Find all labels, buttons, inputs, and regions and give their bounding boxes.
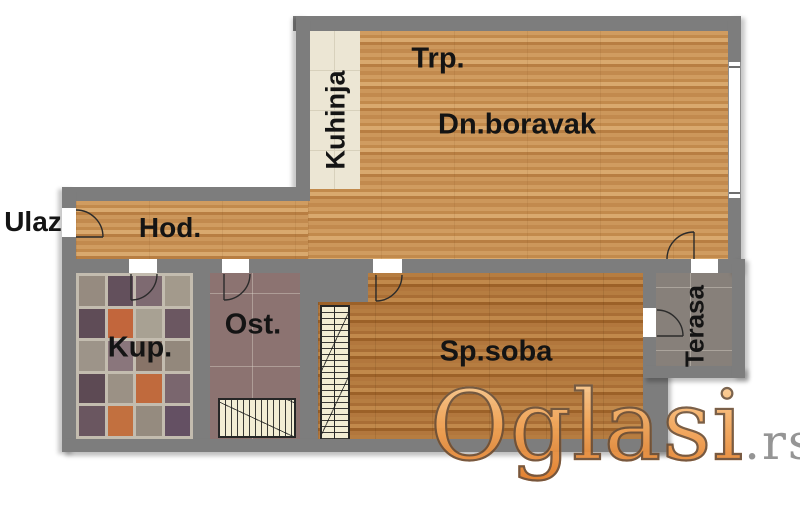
room-label-entrance: Ulaz bbox=[4, 206, 62, 238]
room-label-hallway: Hod. bbox=[139, 212, 201, 244]
room-label-terrace: Terasa bbox=[680, 285, 711, 367]
watermark-brand: Oglasi bbox=[430, 370, 744, 482]
wall-upper-left bbox=[296, 16, 310, 188]
room-label-dining: Trp. bbox=[411, 43, 464, 76]
window-sill-top bbox=[729, 66, 740, 68]
wall-top bbox=[293, 16, 741, 31]
watermark: Oglasi.rs bbox=[430, 378, 800, 474]
door-opening-bedroom-terrace bbox=[643, 308, 656, 337]
wall-hallway-top bbox=[62, 187, 310, 201]
wall-terrace-right bbox=[732, 259, 745, 378]
watermark-tld: .rs bbox=[744, 413, 800, 471]
floor-living-room bbox=[308, 31, 728, 259]
room-label-bedroom: Sp.soba bbox=[440, 336, 553, 369]
room-label-living-room: Dn.boravak bbox=[438, 109, 596, 142]
room-label-kitchen: Kuhinja bbox=[321, 71, 352, 170]
storage-tile-line-h2 bbox=[210, 366, 300, 367]
wall-storage-bedroom bbox=[300, 273, 318, 439]
door-opening-storage bbox=[222, 259, 249, 273]
wardrobe-storage bbox=[218, 398, 296, 438]
wardrobe-bedroom bbox=[320, 305, 350, 441]
window-symbol bbox=[728, 62, 741, 198]
door-opening-bathroom bbox=[129, 259, 157, 273]
wall-bathroom-storage bbox=[193, 273, 210, 439]
floorplan-canvas: Ulaz Hod. Kuhinja Trp. Dn.boravak Kup. O… bbox=[0, 0, 800, 514]
room-label-storage: Ost. bbox=[225, 309, 281, 342]
door-opening-entrance bbox=[62, 208, 76, 237]
storage-tile-line-h1 bbox=[210, 293, 300, 294]
window-sill-bottom bbox=[729, 192, 740, 194]
door-opening-bedroom bbox=[373, 259, 402, 273]
room-label-bathroom: Kup. bbox=[108, 332, 172, 365]
door-opening-living-terrace bbox=[691, 259, 718, 273]
